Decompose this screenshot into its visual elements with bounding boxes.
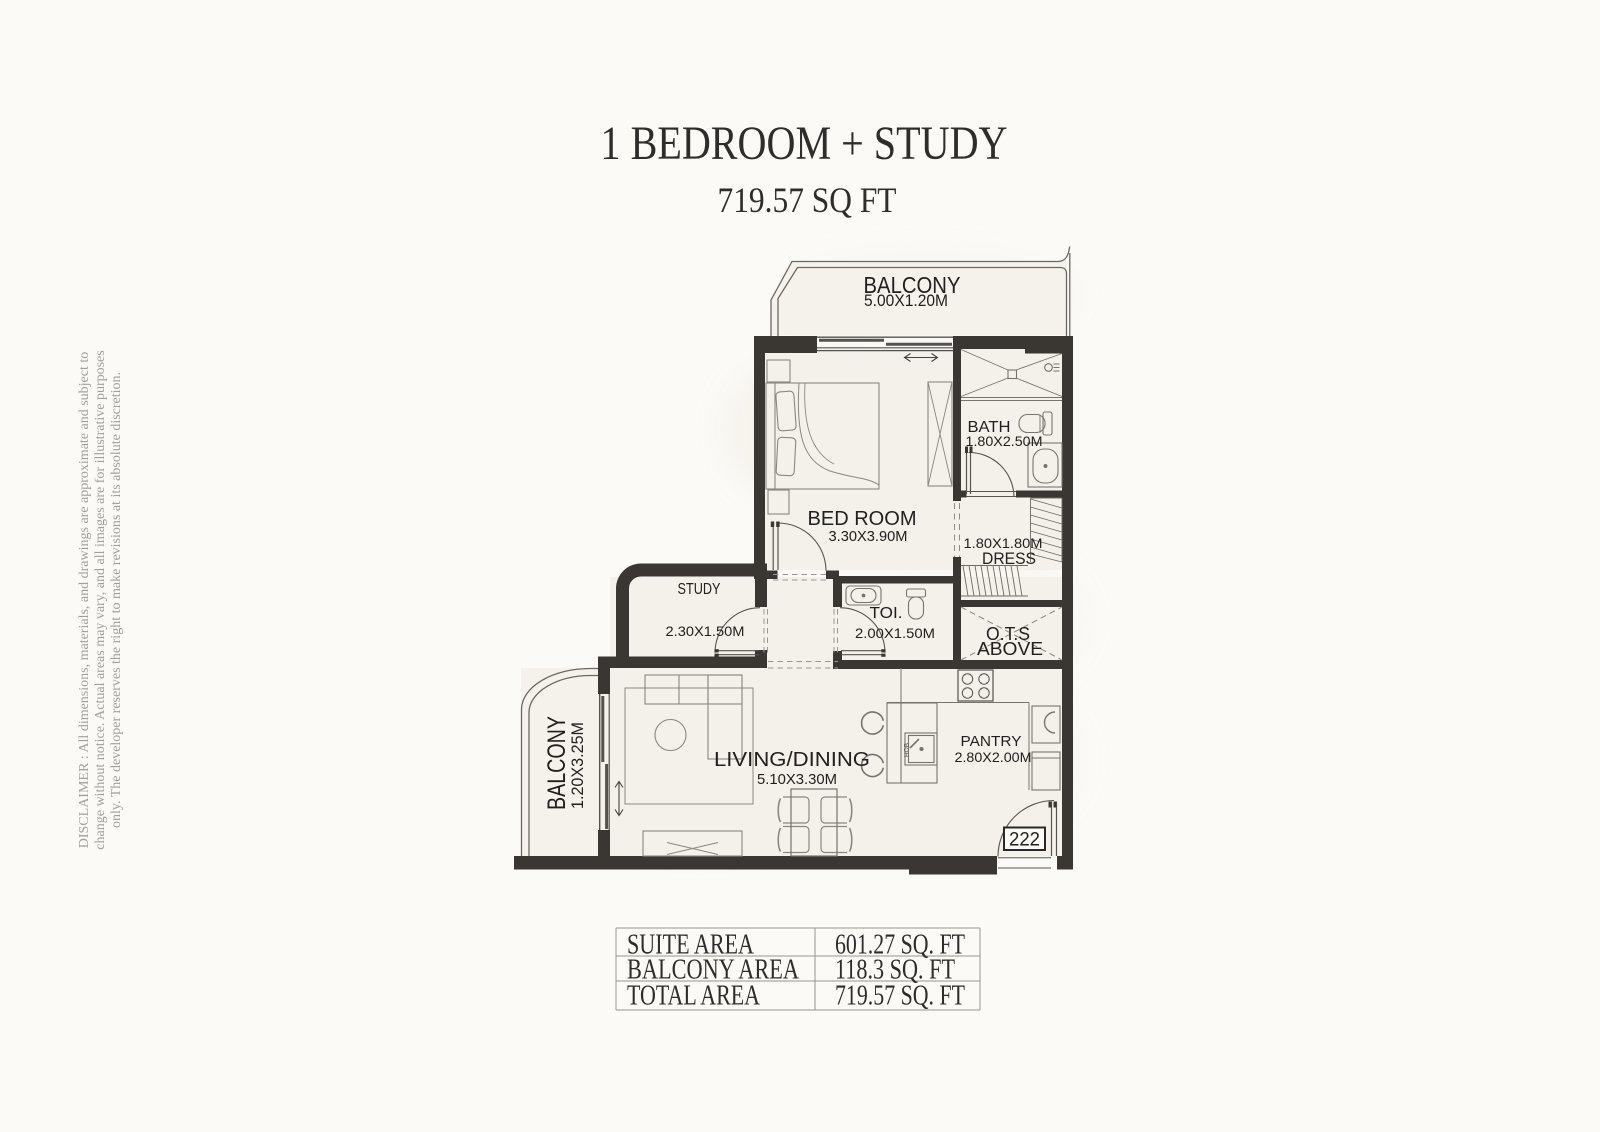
svg-text:3.30X3.90M: 3.30X3.90M <box>829 528 908 545</box>
svg-text:2.00X1.50M: 2.00X1.50M <box>855 625 935 641</box>
svg-text:PANTRY: PANTRY <box>961 733 1022 750</box>
svg-text:2.30X1.50M: 2.30X1.50M <box>666 623 745 639</box>
svg-text:only. The developer reserves t: only. The developer reserves the right t… <box>109 372 124 828</box>
svg-text:DISCLAIMER : All dimensions, m: DISCLAIMER : All dimensions, materials, … <box>77 352 92 849</box>
svg-text:BALCONY: BALCONY <box>543 716 571 810</box>
svg-text:1.20X3.25M: 1.20X3.25M <box>568 722 587 809</box>
svg-text:719.57 SQ. FT: 719.57 SQ. FT <box>835 981 965 1012</box>
svg-text:1.80X2.50M: 1.80X2.50M <box>966 433 1043 449</box>
svg-text:1 BEDROOM + STUDY: 1 BEDROOM + STUDY <box>601 117 1008 170</box>
svg-text:TOTAL AREA: TOTAL AREA <box>627 981 761 1012</box>
svg-text:719.57 SQ FT: 719.57 SQ FT <box>718 180 897 220</box>
svg-text:222: 222 <box>1009 830 1040 851</box>
svg-text:HOB: HOB <box>904 743 911 757</box>
svg-text:LIVING/DINING: LIVING/DINING <box>714 749 870 771</box>
svg-text:change without notice. Actual: change without notice. Actual areas may … <box>93 350 108 849</box>
svg-text:2.80X2.00M: 2.80X2.00M <box>955 749 1032 765</box>
svg-text:DRESS: DRESS <box>982 549 1036 568</box>
svg-text:STUDY: STUDY <box>678 581 721 598</box>
svg-text:TOI.: TOI. <box>870 605 903 622</box>
svg-text:5.10X3.30M: 5.10X3.30M <box>757 771 837 788</box>
svg-text:5.00X1.20M: 5.00X1.20M <box>864 291 948 310</box>
svg-text:BED ROOM: BED ROOM <box>808 508 917 530</box>
svg-text:ABOVE: ABOVE <box>977 639 1043 659</box>
